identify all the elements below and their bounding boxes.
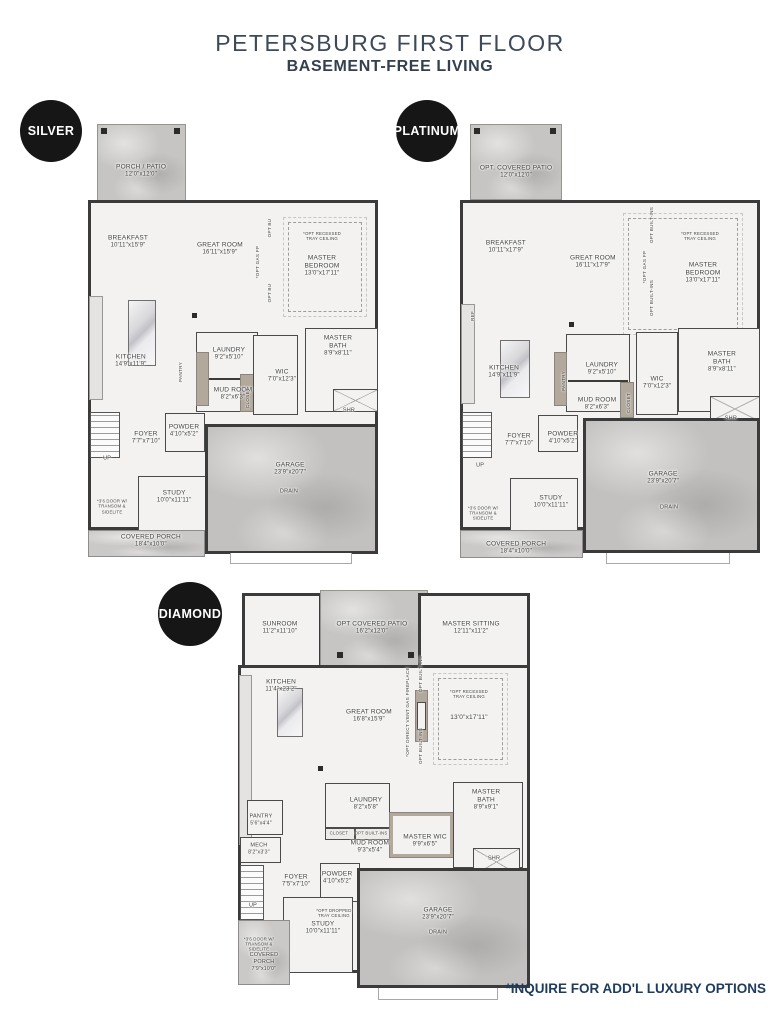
- room-label-13-0-x17-11: 13'0"x17'11": [450, 714, 488, 722]
- room-label-drain: DRAIN: [429, 930, 447, 937]
- room-label-great-room: GREAT ROOM16'11"x15'9": [197, 241, 243, 256]
- diamond-floor-plan: SUNROOM11'2"x11'10"OPT COVERED PATIO16'2…: [238, 590, 533, 1002]
- room-label-garage: GARAGE23'9"x20'7": [274, 462, 306, 477]
- room-label-powder: POWDER4'10"x5'2": [169, 423, 199, 438]
- room-label-up: UP: [476, 463, 484, 470]
- room-label-covered-porch: COVERED PORCH18'4"x10'0": [121, 533, 181, 548]
- room-label-kitchen: KITCHEN14'9"x11'9": [115, 353, 146, 368]
- room-label-master-bath: MASTER BATH8'9"x8'11": [708, 350, 736, 373]
- room-label-drain: DRAIN: [660, 504, 678, 511]
- room-label-laundry: LAUNDRY9'2"x5'10": [213, 346, 245, 361]
- room-label-laundry: LAUNDRY9'2"x5'10": [586, 361, 618, 376]
- room-label-closet: CLOSET: [626, 393, 632, 413]
- room-label-opt-covered-patio: OPT COVERED PATIO16'2"x12'0": [336, 620, 407, 635]
- room-label-up: UP: [103, 456, 111, 463]
- room-label-foyer: FOYER7'7"x7'10": [132, 430, 160, 445]
- room-label-closet: CLOSET: [245, 388, 251, 408]
- room-label-great-room: GREAT ROOM16'11"x17'9": [570, 254, 616, 269]
- room-label-drain: DRAIN: [280, 489, 298, 496]
- room-label-covered-porch: COVERED PORCH7'9"x10'0": [250, 952, 279, 972]
- room-label-powder: POWDER4'10"x5'2": [322, 870, 352, 885]
- room-label-opt-built-ins: OPT BUILT-INS: [418, 656, 424, 692]
- room-label-pantry: PANTRY: [178, 362, 184, 382]
- room-label-shr: SHR: [343, 407, 355, 414]
- room-label-sunroom: SUNROOM11'2"x11'10": [262, 620, 297, 635]
- room-label-garage: GARAGE23'9"x20'7": [422, 906, 454, 921]
- room-label-wic: WIC7'0"x12'3": [268, 368, 296, 383]
- footnote: *INQUIRE FOR ADD'L LUXURY OPTIONS: [506, 981, 766, 996]
- room-label-laundry: LAUNDRY8'2"x5'8": [350, 796, 382, 811]
- platinum-room-labels: OPT. COVERED PATIO12'0"x12'0"BREAKFAST10…: [460, 124, 760, 574]
- room-label-shr: SHR: [488, 856, 500, 863]
- room-label-breakfast: BREAKFAST10'11"x17'9": [486, 239, 526, 254]
- room-label-opt-bu: OPT BU: [267, 284, 273, 303]
- diamond-badge: DIAMOND: [158, 582, 222, 646]
- room-label-opt-built-ins: OPT BUILT-INS: [355, 831, 388, 836]
- room-label-mud-room: MUD ROOM9'3"x5'4": [351, 839, 389, 854]
- room-label-porch-patio: PORCH / PATIO12'0"x12'0": [116, 163, 166, 178]
- room-label-opt-bu: OPT BU: [267, 218, 273, 237]
- diamond-room-labels: SUNROOM11'2"x11'10"OPT COVERED PATIO16'2…: [238, 590, 533, 1002]
- room-label-ref: REF: [470, 311, 476, 321]
- room-label-3-6-door-w-transom-sidelite: *3'6 DOOR W/ TRANSOM & SIDELITE: [97, 498, 127, 513]
- room-label-opt-recessed-tray-ceiling: *OPT RECESSED TRAY CEILING: [303, 231, 341, 241]
- room-label-3-6-door-w-transom-sidelite: *3'6 DOOR W/ TRANSOM & SIDELITE: [468, 505, 498, 520]
- room-label-study: STUDY10'0"x11'11": [534, 494, 568, 509]
- room-label-opt-built-ins: OPT BUILT-INS: [649, 207, 655, 243]
- page-title: PETERSBURG FIRST FLOOR: [0, 30, 780, 57]
- room-label-opt-recessed-tray-ceiling: *OPT RECESSED TRAY CEILING: [450, 689, 488, 699]
- room-label-study: STUDY10'0"x11'11": [306, 920, 340, 935]
- room-label-wic: WIC7'0"x12'3": [643, 376, 671, 391]
- silver-floor-plan: PORCH / PATIO12'0"x12'0"BREAKFAST10'11"x…: [88, 124, 378, 570]
- room-label-opt-recessed-tray-ceiling: *OPT RECESSED TRAY CEILING: [681, 231, 719, 241]
- room-label-garage: GARAGE23'9"x20'7": [647, 470, 679, 485]
- room-label-pantry: PANTRY: [561, 371, 567, 391]
- page-subtitle: BASEMENT-FREE LIVING: [0, 58, 780, 76]
- room-label-mech: MECH8'2"x3'3": [248, 843, 270, 856]
- floor-plan-sheet: PETERSBURG FIRST FLOOR BASEMENT-FREE LIV…: [0, 0, 780, 1021]
- platinum-floor-plan: OPT. COVERED PATIO12'0"x12'0"BREAKFAST10…: [460, 124, 760, 574]
- room-label-master-bedroom: MASTER BEDROOM13'0"x17'11": [294, 254, 350, 277]
- room-label-opt-built-ins: OPT BUILT-INS: [649, 280, 655, 316]
- silver-badge: SILVER: [20, 100, 82, 162]
- room-label-kitchen: KITCHEN14'9"x11'9": [488, 364, 519, 379]
- room-label-powder: POWDER4'10"x5'2": [548, 430, 578, 445]
- room-label-breakfast: BREAKFAST10'11"x15'9": [108, 235, 148, 250]
- room-label-closet: CLOSET: [330, 831, 348, 836]
- room-label-opt-covered-patio: OPT. COVERED PATIO12'0"x12'0": [480, 164, 552, 179]
- room-label-master-wic: MASTER WIC9'9"x6'5": [403, 833, 447, 848]
- room-label-kitchen: KITCHEN11'4"x23'2": [265, 678, 296, 693]
- platinum-badge: PLATINUM: [396, 100, 458, 162]
- room-label-up: UP: [249, 903, 257, 910]
- room-label-3-6-door-w-transom-sidelite: *3'6 DOOR W/ TRANSOM & SIDELITE: [244, 936, 274, 951]
- room-label-opt-gas-fp: *OPT GAS FP: [642, 251, 648, 284]
- room-label-opt-built-ins: OPT BUILT-INS: [418, 728, 424, 764]
- room-label-master-bath: MASTER BATH8'9"x9'1": [472, 788, 500, 811]
- silver-room-labels: PORCH / PATIO12'0"x12'0"BREAKFAST10'11"x…: [88, 124, 378, 570]
- room-label-study: STUDY10'0"x11'11": [157, 489, 191, 504]
- room-label-master-sitting: MASTER SITTING12'11"x11'2": [442, 620, 499, 635]
- room-label-master-bedroom: MASTER BEDROOM13'0"x17'11": [686, 261, 721, 284]
- room-label-foyer: FOYER7'7"x7'10": [505, 432, 533, 447]
- room-label-opt-gas-fp: *OPT GAS FP: [255, 246, 261, 279]
- room-label-covered-porch: COVERED PORCH18'4"x10'0": [486, 540, 546, 555]
- room-label-shr: SHR: [725, 416, 737, 423]
- room-label-opt-direct-vent-gas-fireplace: *OPT DIRECT VENT GAS FIREPLACE: [405, 667, 411, 757]
- room-label-opt-dropped-tray-ceiling: *OPT DROPPED TRAY CEILING: [316, 908, 351, 918]
- room-label-pantry: PANTRY5'6"x4'4": [249, 813, 272, 826]
- room-label-mud-room: MUD ROOM8'2"x6'3": [578, 396, 616, 411]
- room-label-master-bath: MASTER BATH8'9"x8'11": [324, 334, 352, 357]
- room-label-foyer: FOYER7'5"x7'10": [282, 873, 310, 888]
- room-label-great-room: GREAT ROOM16'8"x15'9": [346, 708, 392, 723]
